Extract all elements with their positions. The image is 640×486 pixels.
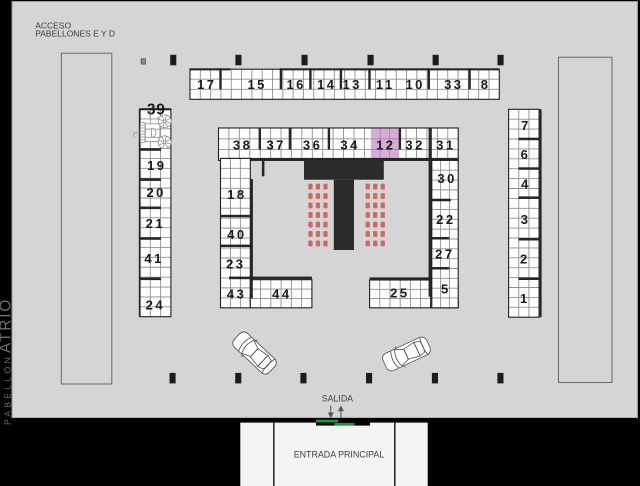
svg-text:32: 32 xyxy=(405,137,424,152)
svg-text:44: 44 xyxy=(272,287,291,302)
svg-text:21: 21 xyxy=(146,216,165,231)
svg-text:23: 23 xyxy=(226,257,245,272)
svg-text:16: 16 xyxy=(286,77,305,92)
svg-text:2: 2 xyxy=(520,252,530,267)
svg-text:6: 6 xyxy=(521,147,531,162)
svg-text:22: 22 xyxy=(436,212,455,227)
svg-text:38: 38 xyxy=(233,137,252,152)
svg-text:14: 14 xyxy=(317,77,336,92)
svg-text:4: 4 xyxy=(521,177,531,192)
svg-text:PABELLONES E Y D: PABELLONES E Y D xyxy=(35,29,115,39)
svg-text:8: 8 xyxy=(481,77,491,92)
svg-text:33: 33 xyxy=(444,77,463,92)
svg-text:1: 1 xyxy=(520,291,530,306)
svg-text:37: 37 xyxy=(266,137,285,152)
svg-text:7: 7 xyxy=(521,118,531,133)
svg-text:27: 27 xyxy=(435,246,454,261)
svg-text:24: 24 xyxy=(146,297,165,312)
svg-text:40: 40 xyxy=(227,227,246,242)
svg-text:SALIDA: SALIDA xyxy=(322,393,353,403)
svg-text:19: 19 xyxy=(147,158,166,173)
svg-text:12: 12 xyxy=(376,137,395,152)
svg-text:20: 20 xyxy=(146,185,165,200)
svg-text:5: 5 xyxy=(441,282,451,297)
svg-text:43: 43 xyxy=(227,287,246,302)
svg-text:18: 18 xyxy=(227,187,246,202)
svg-text:17: 17 xyxy=(197,77,216,92)
svg-text:41: 41 xyxy=(144,251,163,266)
svg-text:31: 31 xyxy=(436,137,455,152)
svg-text:PABELLÓNATRIO: PABELLÓNATRIO xyxy=(0,298,14,425)
svg-text:34: 34 xyxy=(340,137,359,152)
svg-text:10: 10 xyxy=(405,77,424,92)
svg-text:13: 13 xyxy=(342,77,361,92)
svg-text:ENTRADA PRINCIPAL: ENTRADA PRINCIPAL xyxy=(294,450,385,460)
svg-text:30: 30 xyxy=(437,171,456,186)
svg-text:36: 36 xyxy=(303,137,322,152)
svg-text:3: 3 xyxy=(521,212,531,227)
svg-text:25: 25 xyxy=(390,285,409,300)
svg-text:15: 15 xyxy=(247,77,266,92)
svg-text:11: 11 xyxy=(376,77,395,92)
